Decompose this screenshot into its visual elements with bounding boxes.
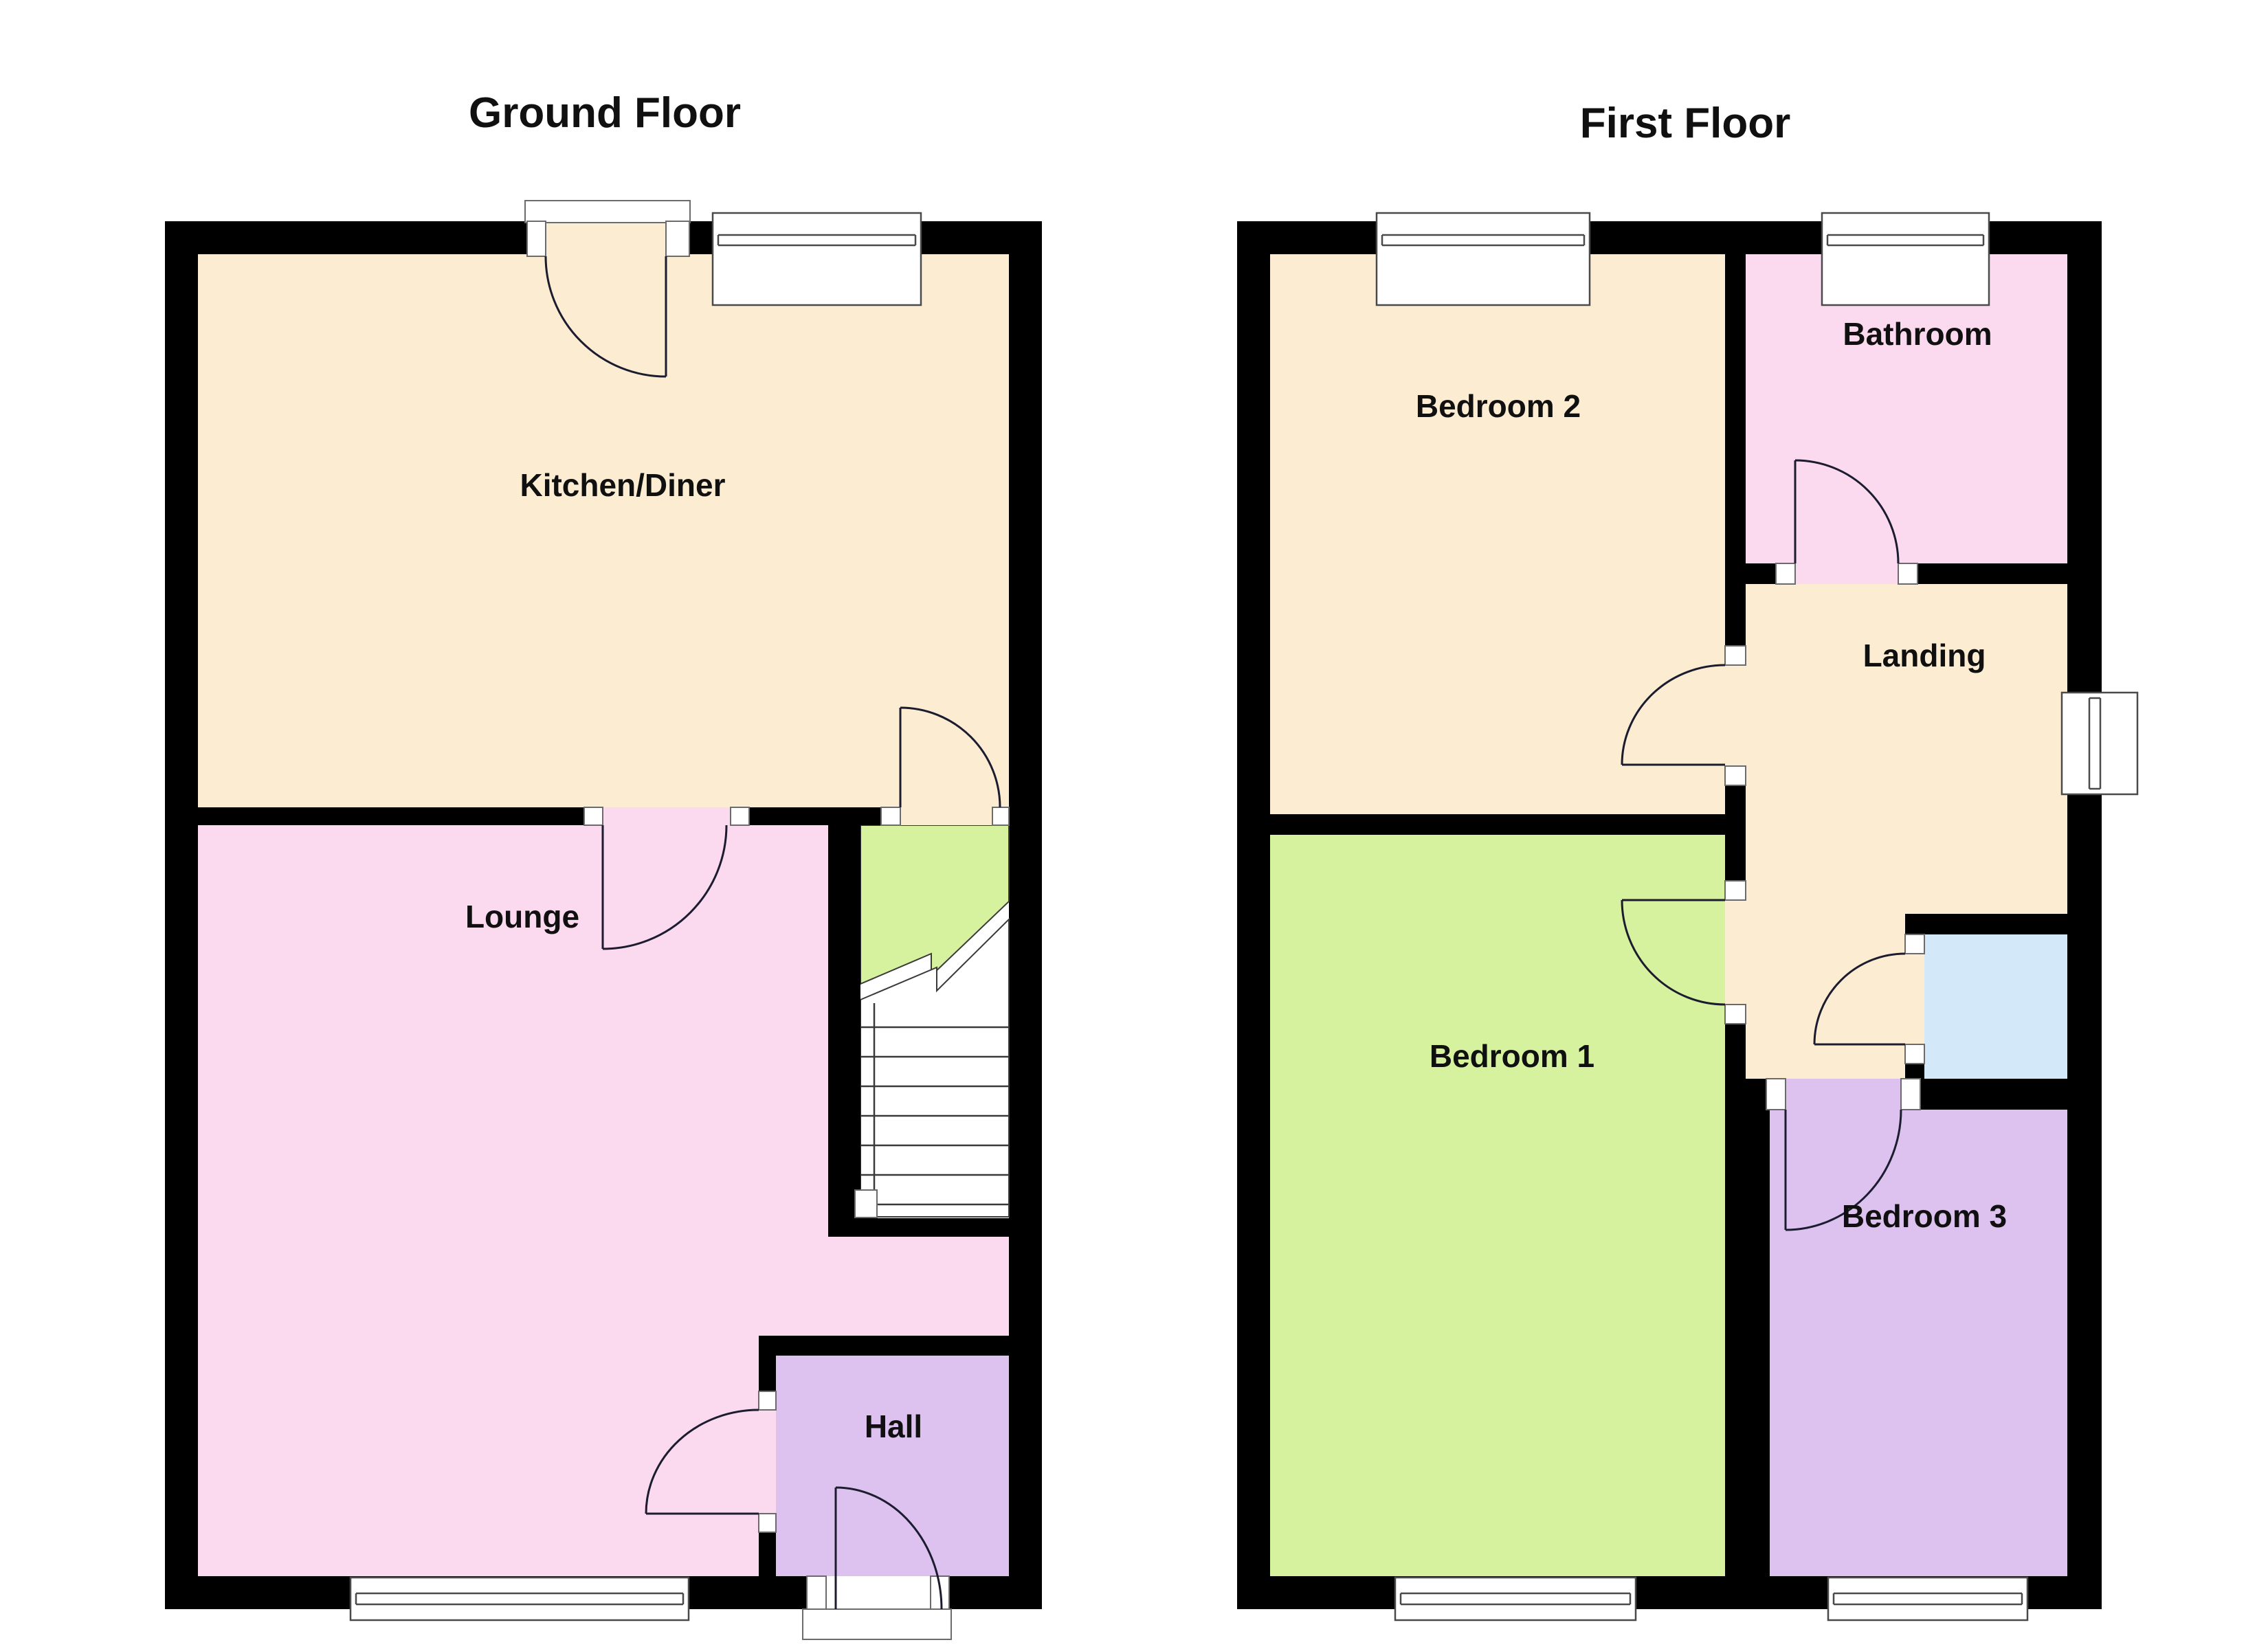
bedroom3-door-threshold	[1786, 1079, 1901, 1110]
bedroom3-window	[1828, 1578, 2027, 1620]
door-jamb	[1766, 1079, 1786, 1110]
door-jamb	[1725, 1005, 1746, 1024]
spine-wall-lower	[1725, 1024, 1746, 1576]
door-jamb	[759, 1514, 776, 1532]
bedroom1-bedroom2-wall	[1270, 814, 1746, 835]
door-jamb	[759, 1391, 776, 1410]
label-bathroom: Bathroom	[1843, 316, 1992, 352]
door-jamb	[1901, 1079, 1920, 1110]
label-bedroom-2: Bedroom 2	[1416, 388, 1581, 424]
first-floor-plan: First Floor	[1237, 100, 2137, 1620]
bathroom-door-threshold	[1795, 563, 1898, 584]
door-jamb	[1905, 1044, 1924, 1064]
room-hall	[776, 1356, 1009, 1576]
label-bedroom-3: Bedroom 3	[1842, 1198, 2007, 1234]
room-airing-cupboard	[1924, 934, 2067, 1079]
stair-newel-jamb	[855, 1190, 877, 1218]
hall-door-threshold	[759, 1410, 776, 1514]
door-jamb	[1725, 646, 1746, 665]
ground-floor-plan: Ground Floor	[165, 89, 1042, 1639]
hall-left-wall-lower	[759, 1532, 776, 1576]
door-jamb	[807, 1576, 826, 1609]
cupboard-door-threshold	[1905, 954, 1924, 1044]
door-jamb	[527, 221, 546, 256]
room-bedroom-3	[1770, 1110, 2067, 1576]
front-door-threshold	[826, 1576, 931, 1609]
bedroom1-window	[1395, 1578, 1636, 1620]
room-bedroom-2	[1270, 254, 1725, 814]
label-landing: Landing	[1863, 638, 1986, 673]
door-jamb	[584, 807, 603, 825]
ground-floor-title: Ground Floor	[469, 89, 741, 137]
cupboard-top-wall	[1905, 914, 2067, 934]
stairs-door-threshold	[900, 807, 992, 825]
door-jamb	[731, 807, 749, 825]
bedroom3-left-wall	[1746, 1079, 1770, 1576]
room-lounge	[198, 825, 828, 1576]
floorplan-page: Ground Floor	[0, 0, 2268, 1649]
door-jamb	[1725, 766, 1746, 785]
lounge-door-threshold	[603, 807, 731, 825]
room-landing-upper	[1746, 584, 2067, 914]
label-hall: Hall	[865, 1409, 922, 1444]
room-bedroom-1	[1270, 835, 1725, 1576]
spine-wall-upper	[1725, 254, 1746, 646]
bedroom2-door-threshold	[1725, 665, 1746, 766]
lounge-window	[351, 1578, 689, 1620]
bedroom3-top-wall	[1920, 1079, 2067, 1110]
front-door-frame	[803, 1609, 951, 1639]
door-jamb	[1898, 563, 1917, 584]
hall-top-wall	[759, 1336, 1009, 1356]
stair-side-wall	[828, 807, 860, 1237]
back-door-frame	[525, 201, 690, 223]
room-kitchen-diner	[198, 254, 1009, 807]
back-door-threshold	[546, 221, 666, 256]
stair-bottom-wall	[828, 1218, 1009, 1237]
door-jamb	[992, 807, 1009, 825]
label-lounge: Lounge	[465, 899, 579, 934]
bathroom-window	[1822, 213, 1989, 305]
bedroom1-door-threshold	[1725, 900, 1746, 1005]
first-floor-title: First Floor	[1580, 100, 1791, 147]
door-jamb	[1725, 881, 1746, 900]
label-bedroom-1: Bedroom 1	[1430, 1038, 1594, 1074]
door-jamb	[881, 807, 900, 825]
floorplan-canvas: Ground Floor	[0, 0, 2268, 1649]
staircase	[860, 825, 1009, 1218]
bedroom2-window	[1377, 213, 1590, 305]
landing-window	[2062, 693, 2137, 794]
door-jamb	[666, 221, 689, 256]
door-jamb	[1905, 934, 1924, 954]
door-jamb	[1776, 563, 1795, 584]
kitchen-window	[713, 213, 921, 305]
room-landing-corridor	[1746, 914, 1905, 1079]
label-kitchen-diner: Kitchen/Diner	[520, 467, 725, 503]
bathroom-bottom-wall	[1917, 563, 2067, 584]
